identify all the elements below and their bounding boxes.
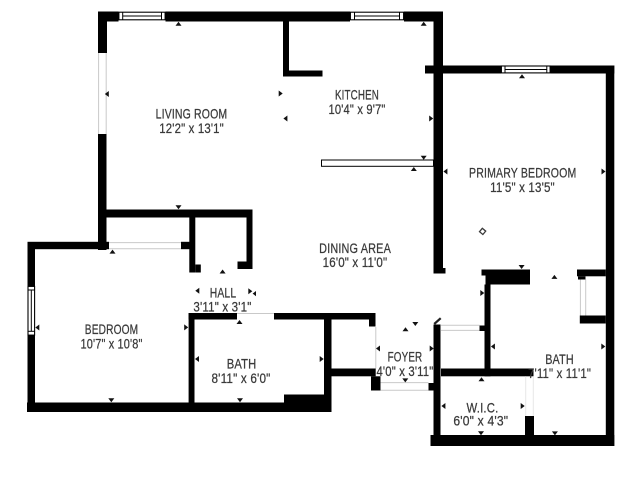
svg-text:BATH: BATH bbox=[545, 352, 574, 367]
svg-text:11'5" x 13'5": 11'5" x 13'5" bbox=[490, 180, 555, 195]
svg-text:8'11" x 6'0": 8'11" x 6'0" bbox=[211, 371, 270, 386]
svg-text:HALL: HALL bbox=[210, 285, 237, 301]
svg-text:16'0" x 11'0": 16'0" x 11'0" bbox=[323, 255, 388, 270]
svg-text:BEDROOM: BEDROOM bbox=[85, 321, 138, 337]
svg-text:6'0" x 4'3": 6'0" x 4'3" bbox=[453, 413, 508, 429]
svg-text:10'4" x 9'7": 10'4" x 9'7" bbox=[329, 102, 386, 117]
svg-text:4'0" x 3'11": 4'0" x 3'11" bbox=[376, 364, 433, 379]
svg-text:3'11" x 3'1": 3'11" x 3'1" bbox=[193, 300, 251, 315]
svg-text:7'11" x 11'1": 7'11" x 11'1" bbox=[528, 366, 591, 381]
svg-text:DINING AREA: DINING AREA bbox=[319, 241, 391, 256]
svg-text:10'7" x 10'8": 10'7" x 10'8" bbox=[80, 336, 142, 351]
svg-text:PRIMARY BEDROOM: PRIMARY BEDROOM bbox=[469, 165, 576, 181]
svg-text:KITCHEN: KITCHEN bbox=[335, 88, 379, 103]
svg-text:FOYER: FOYER bbox=[388, 349, 423, 365]
svg-text:LIVING ROOM: LIVING ROOM bbox=[156, 106, 228, 122]
svg-text:BATH: BATH bbox=[227, 356, 257, 371]
svg-text:12'2" x 13'1": 12'2" x 13'1" bbox=[159, 121, 224, 136]
